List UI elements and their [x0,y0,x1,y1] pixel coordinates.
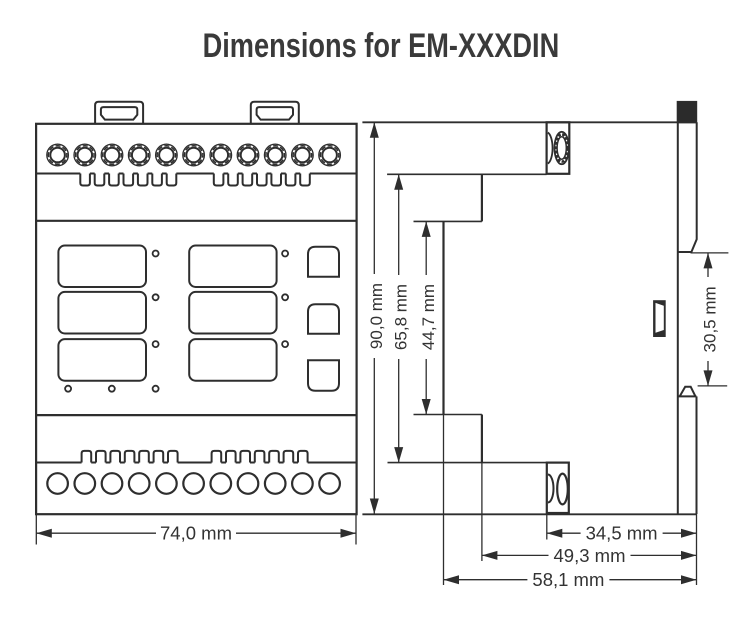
svg-text:74,0 mm: 74,0 mm [160,523,232,544]
svg-text:58,1 mm: 58,1 mm [532,569,604,590]
svg-text:49,3 mm: 49,3 mm [554,545,626,566]
svg-text:65,8 mm: 65,8 mm [391,284,410,350]
svg-text:30,5 mm: 30,5 mm [701,286,720,352]
svg-text:44,7 mm: 44,7 mm [419,284,438,350]
svg-text:34,5 mm: 34,5 mm [586,523,658,544]
svg-text:90,0 mm: 90,0 mm [367,283,386,349]
